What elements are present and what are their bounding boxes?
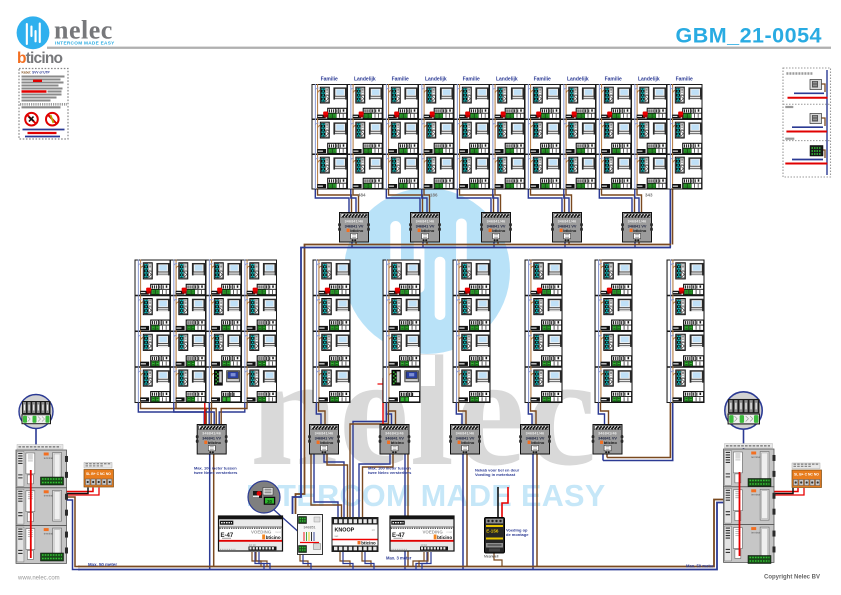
svg-text:343: 343	[645, 193, 653, 198]
svg-text:twee Nelec versterkers: twee Nelec versterkers	[194, 470, 238, 475]
svg-text:Max. 3 meter: Max. 3 meter	[386, 556, 412, 561]
svg-text:Voeding in meterkast: Voeding in meterkast	[475, 472, 516, 477]
svg-text:Familie: Familie	[534, 77, 551, 83]
svg-text:GBM_21-0054: GBM_21-0054	[675, 24, 822, 48]
svg-text:Landelijk: Landelijk	[425, 77, 447, 83]
svg-text:Landelijk: Landelijk	[638, 77, 660, 83]
svg-text:INTERCOM MADE EASY: INTERCOM MADE EASY	[55, 41, 115, 46]
svg-text:Familie: Familie	[392, 77, 409, 83]
svg-text:Familie: Familie	[605, 77, 622, 83]
svg-text:bticino: bticino	[17, 50, 63, 67]
svg-text:www.nelec.com: www.nelec.com	[17, 576, 60, 582]
svg-text:Landelijk: Landelijk	[354, 77, 376, 83]
svg-text:186: 186	[430, 193, 438, 198]
svg-text:Landelijk: Landelijk	[567, 77, 589, 83]
svg-text:Max. 50 meter: Max. 50 meter	[686, 564, 714, 569]
svg-text:Familie: Familie	[321, 77, 338, 83]
svg-text:INTERCOM MADE EASY: INTERCOM MADE EASY	[246, 479, 606, 513]
svg-text:Meanwell: Meanwell	[484, 555, 499, 559]
svg-text:Kabel: SVV of UTP: Kabel: SVV of UTP	[22, 71, 51, 75]
svg-text:Max. 50 meter: Max. 50 meter	[88, 562, 117, 567]
svg-text:Familie: Familie	[676, 77, 693, 83]
svg-text:de montage: de montage	[506, 532, 529, 537]
svg-text:484: 484	[358, 193, 366, 198]
svg-text:Familie: Familie	[463, 77, 480, 83]
svg-text:Copyright Nelec BV: Copyright Nelec BV	[764, 575, 820, 581]
svg-text:twee Nelec versterkers: twee Nelec versterkers	[368, 470, 412, 475]
svg-text:Landelijk: Landelijk	[496, 77, 518, 83]
